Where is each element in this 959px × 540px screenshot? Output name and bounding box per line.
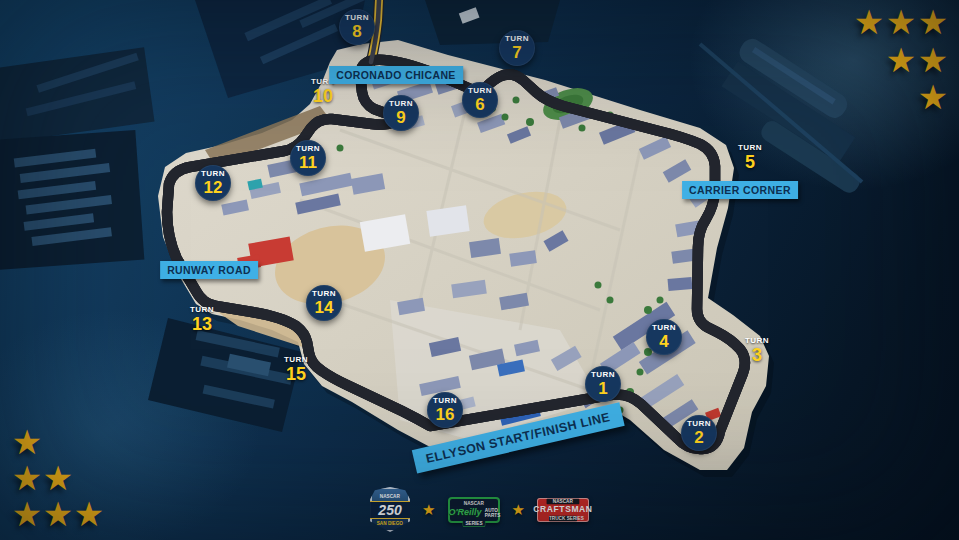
turn-word: TURN xyxy=(745,337,769,345)
oreilly-name: O'Reilly xyxy=(448,508,481,517)
star-icon: ★ xyxy=(918,80,948,114)
corner-label-carrier-corner: CARRIER CORNER xyxy=(682,181,798,199)
race-logo-location: SAN DIEGO xyxy=(377,520,403,525)
turn-number: 4 xyxy=(659,333,668,350)
turn-marker-2: TURN2 xyxy=(681,415,717,451)
star-icon: ★ xyxy=(12,425,42,459)
turn-word: TURN xyxy=(505,35,529,43)
turn-number: 6 xyxy=(475,96,484,113)
turn-number: 2 xyxy=(694,429,703,446)
star-icon: ★ xyxy=(886,43,916,77)
turn-number: 14 xyxy=(315,299,334,316)
craftsman-name: CRAFTSMAN xyxy=(533,504,592,514)
turn-number: 16 xyxy=(436,406,455,423)
race-logo-250: NASCAR 250 SAN DIEGO xyxy=(370,487,410,532)
turn-number: 15 xyxy=(286,365,306,383)
star-icon: ★ xyxy=(886,5,916,39)
series-logo-oreilly-auto-parts: NASCAR O'Reilly AUTO PARTS SERIES xyxy=(448,497,500,523)
turn-word: TURN xyxy=(201,170,225,178)
star-icon: ★ xyxy=(918,5,948,39)
turn-number: 8 xyxy=(352,23,361,40)
star-icon: ★ xyxy=(918,43,948,77)
oreilly-brand: NASCAR xyxy=(463,501,483,506)
oreilly-suffix: AUTO PARTS xyxy=(484,508,496,517)
coronado-track-map-graphic: TURN1TURN2TURN3TURN4TURN5TURN6TURN7TURN8… xyxy=(0,0,959,540)
turn-marker-15: TURN15 xyxy=(284,356,308,383)
turn-word: TURN xyxy=(296,145,320,153)
star-icon: ★ xyxy=(512,502,525,517)
turn-marker-4: TURN4 xyxy=(646,319,682,355)
turn-marker-7: TURN7 xyxy=(499,30,535,66)
turn-word: TURN xyxy=(312,290,336,298)
craftsman-sub: TRUCK SERIES xyxy=(549,515,577,520)
turn-marker-9: TURN9 xyxy=(383,95,419,131)
race-logo-brand: NASCAR xyxy=(380,494,400,499)
turn-word: TURN xyxy=(652,324,676,332)
corner-label-coronado-chicane: CORONADO CHICANE xyxy=(329,66,463,84)
turn-word: TURN xyxy=(284,356,308,364)
turn-number: 5 xyxy=(745,153,755,171)
turn-word: TURN xyxy=(345,14,369,22)
turn-marker-3: TURN3 xyxy=(745,337,769,364)
turn-number: 11 xyxy=(299,154,317,171)
oreilly-series-tab: SERIES xyxy=(462,521,485,527)
race-logo-number: 250 xyxy=(370,501,410,519)
turn-word: TURN xyxy=(433,397,457,405)
star-icon: ★ xyxy=(422,502,435,517)
turn-number: 3 xyxy=(752,346,762,364)
star-icon: ★ xyxy=(854,5,884,39)
turn-word: TURN xyxy=(687,420,711,428)
turn-number: 13 xyxy=(192,315,212,333)
turn-number: 9 xyxy=(396,109,405,126)
footer-series-logos: NASCAR 250 SAN DIEGO ★ NASCAR O'Reilly A… xyxy=(0,487,959,532)
turn-word: TURN xyxy=(591,371,615,379)
craftsman-brand: NASCAR xyxy=(547,499,579,504)
turn-marker-11: TURN11 xyxy=(290,140,326,176)
turn-number: 1 xyxy=(598,380,607,397)
turn-marker-6: TURN6 xyxy=(462,82,498,118)
turn-marker-13: TURN13 xyxy=(190,306,214,333)
map-annotations: TURN1TURN2TURN3TURN4TURN5TURN6TURN7TURN8… xyxy=(0,0,959,540)
turn-number: 7 xyxy=(512,44,521,61)
turn-marker-5: TURN5 xyxy=(738,144,762,171)
turn-marker-8: TURN8 xyxy=(339,9,375,45)
turn-number: 12 xyxy=(204,179,223,196)
turn-marker-12: TURN12 xyxy=(195,165,231,201)
turn-marker-14: TURN14 xyxy=(306,285,342,321)
turn-marker-16: TURN16 xyxy=(427,392,463,428)
corner-label-runway-road: RUNWAY ROAD xyxy=(160,261,258,279)
series-logo-craftsman: NASCAR CRAFTSMAN TRUCK SERIES xyxy=(537,498,589,522)
turn-word: TURN xyxy=(190,306,214,314)
turn-word: TURN xyxy=(468,87,492,95)
turn-word: TURN xyxy=(389,100,413,108)
turn-word: TURN xyxy=(738,144,762,152)
turn-number: 10 xyxy=(313,87,333,105)
turn-marker-1: TURN1 xyxy=(585,366,621,402)
